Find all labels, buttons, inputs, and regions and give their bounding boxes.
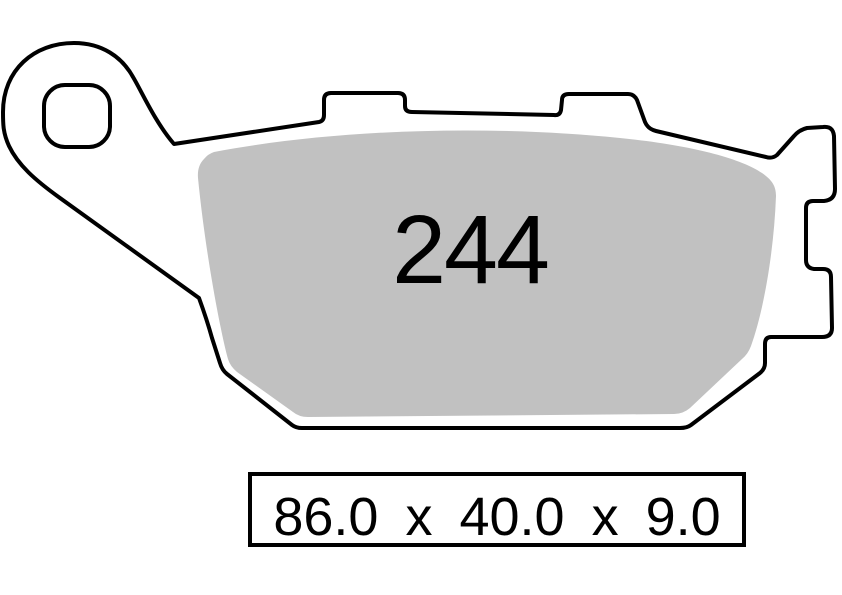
- part-number-label: 244: [392, 201, 548, 298]
- mounting-hole: [44, 85, 110, 147]
- brake-pad-diagram-page: 244 86.0 x 40.0 x 9.0: [0, 0, 842, 595]
- dimensions-label: 86.0 x 40.0 x 9.0: [273, 490, 720, 544]
- dimensions-box: 86.0 x 40.0 x 9.0: [248, 472, 746, 547]
